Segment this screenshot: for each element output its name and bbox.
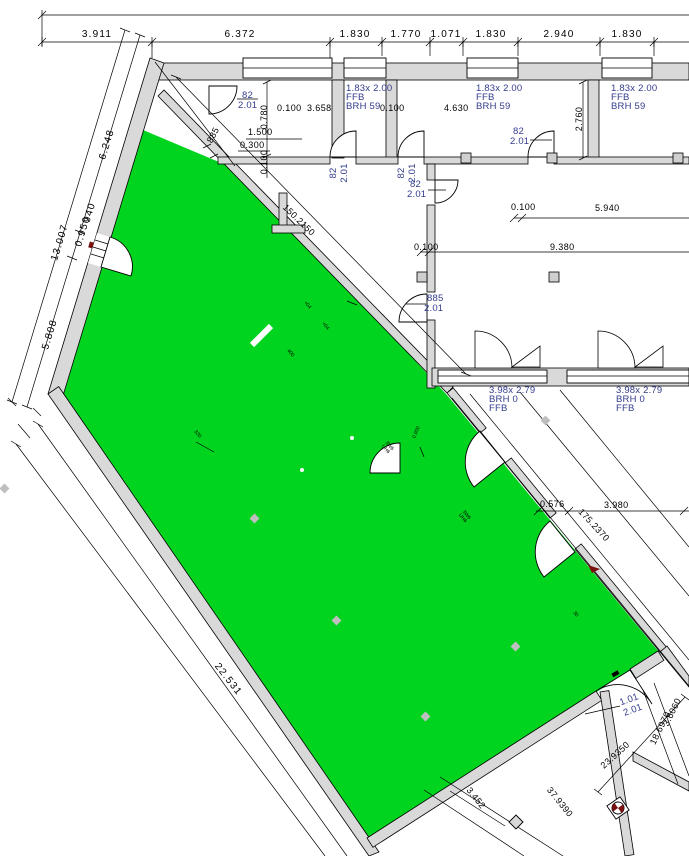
- door-b-label: 82 2.01: [328, 160, 350, 186]
- dim-2760: 2.760: [574, 99, 584, 139]
- dim-top-6: 1.830: [466, 29, 516, 40]
- window-mid-0: [438, 370, 547, 383]
- dim-0100-d: 0.100: [414, 242, 439, 252]
- corridor-wall-3: [424, 157, 528, 164]
- dim-3658: 3.658: [307, 103, 332, 113]
- dim-0100-v: 0.100: [259, 142, 269, 182]
- door-arc-e: [435, 180, 458, 203]
- diamond-column: [509, 815, 523, 829]
- dim-top-8: 1.830: [602, 29, 652, 40]
- floorplan-canvas: 3.911 6.372 1.830 1.770 1.071 1.830 2.94…: [0, 0, 689, 856]
- swing-tri-1: [512, 346, 540, 367]
- corridor-wall-4: [554, 157, 689, 164]
- swing-tri-2: [635, 346, 663, 367]
- column: [549, 272, 559, 282]
- dim-5940: 5.940: [595, 203, 620, 213]
- door-c-width: 82: [396, 160, 407, 186]
- dim-0576: 0.576: [540, 499, 565, 509]
- door-arc-a: [209, 86, 237, 114]
- dim-9380: 9.380: [550, 242, 575, 252]
- door-f-height: 2.01: [424, 303, 443, 314]
- columns: [417, 153, 683, 282]
- dim-1500: 1.500: [248, 127, 273, 137]
- midwindow-label-1-ffb: FFB: [489, 403, 508, 414]
- white-dot: [300, 468, 304, 472]
- dim-4630: 4.630: [444, 103, 469, 113]
- column: [547, 153, 557, 163]
- floorplan-geometry: [0, 0, 689, 856]
- dim-top-5: 1.071: [421, 29, 471, 40]
- dim-0100-a: 0.100: [277, 103, 302, 113]
- white-dot: [350, 436, 354, 440]
- window-mid-1: [567, 370, 689, 383]
- dim-top-1: 3.911: [72, 29, 122, 40]
- column: [461, 153, 471, 163]
- column: [673, 153, 683, 163]
- dim-top-2: 6.372: [215, 29, 265, 40]
- window-swing-symbols: [475, 331, 663, 368]
- swing-arc-1: [475, 331, 512, 368]
- vert-wall-1: [427, 164, 435, 180]
- midwindow-label-2-ffb: FFB: [616, 403, 635, 414]
- highlighted-room-green[interactable]: [62, 130, 659, 839]
- door-e-height: 2.01: [407, 189, 426, 200]
- dim-0100-c: 0.100: [511, 202, 536, 212]
- door-a-height: 2.01: [238, 100, 257, 111]
- dim-top-3: 1.830: [330, 29, 380, 40]
- dim-0100-b: 0.100: [380, 103, 405, 113]
- door-arc-f: [399, 294, 427, 322]
- window-label-3-brh: BRH 59: [611, 101, 645, 112]
- dim-top-7: 2.940: [534, 29, 584, 40]
- swing-arc-2: [598, 331, 635, 368]
- door-b-height: 2.01: [339, 160, 350, 186]
- window-label-2-brh: BRH 59: [476, 101, 510, 112]
- dim-3980: 3.980: [604, 500, 629, 510]
- corridor-wall-1: [218, 157, 330, 164]
- door-d-height: 2.01: [510, 136, 529, 147]
- door-arc-c: [398, 131, 424, 157]
- wall-p3: [633, 752, 689, 791]
- column: [417, 272, 427, 282]
- door-b-width: 82: [328, 160, 339, 186]
- window-label-1-brh: BRH 59: [346, 101, 380, 112]
- partition-b: [588, 80, 599, 158]
- corridor-wall-2: [356, 157, 398, 164]
